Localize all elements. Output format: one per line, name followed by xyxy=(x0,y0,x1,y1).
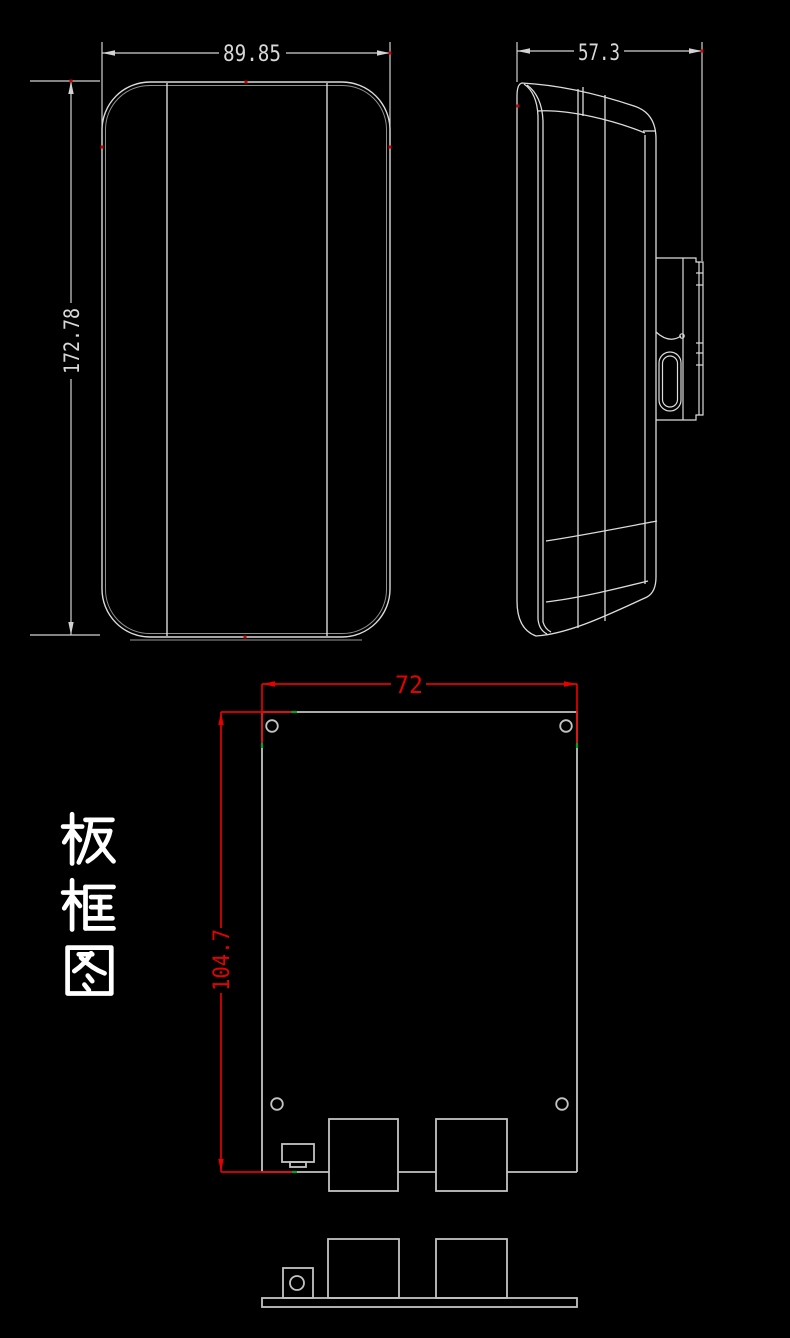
arrowhead xyxy=(377,50,390,55)
arrowhead xyxy=(218,712,223,725)
mounting-hole xyxy=(560,720,572,732)
board-width-value: 72 xyxy=(395,671,423,699)
arrowhead xyxy=(262,681,275,686)
board-profile xyxy=(262,1298,577,1307)
front-outline-outer xyxy=(102,82,390,637)
drawing-sheet: 89.85 172.78 xyxy=(0,0,790,1338)
board-outline-title-glyphs xyxy=(63,814,113,993)
small-component-profile xyxy=(283,1268,313,1298)
connector-footprint xyxy=(329,1119,398,1191)
bracket-slot-inner xyxy=(663,356,678,407)
snap-markers xyxy=(262,712,577,1172)
connector-profile xyxy=(436,1239,507,1298)
side-view xyxy=(517,83,657,636)
arrowhead xyxy=(517,48,530,53)
glyph-kuang xyxy=(63,880,113,929)
connector-profile xyxy=(328,1239,399,1298)
board-outline-view xyxy=(262,712,577,1191)
enclosure-depth-value: 57.3 xyxy=(578,41,620,66)
mounting-bracket xyxy=(656,258,703,420)
side-top-inner-curve xyxy=(537,111,645,133)
small-component-body xyxy=(282,1144,314,1162)
arrowhead xyxy=(68,622,73,635)
arrowhead xyxy=(689,48,702,53)
cad-drawing-canvas: 板框图 89.85 172.78 xyxy=(0,0,790,1338)
arrowhead xyxy=(68,81,73,94)
arrowhead xyxy=(218,1159,223,1172)
small-component-hole xyxy=(290,1276,304,1290)
arrowhead xyxy=(564,681,577,686)
dim-enclosure-height: 172.78 xyxy=(30,81,100,635)
mounting-hole xyxy=(271,1098,283,1110)
enclosure-width-value: 89.85 xyxy=(223,42,281,67)
front-outline-inner-lip xyxy=(106,86,387,634)
small-component-tab xyxy=(290,1162,306,1167)
mounting-hole xyxy=(266,720,278,732)
dim-board-height: 104.7 xyxy=(210,712,292,1172)
board-edge xyxy=(262,712,577,1172)
glyph-ban xyxy=(63,814,113,863)
side-back-shell-line xyxy=(527,85,551,632)
side-bottom-inner-curve xyxy=(546,581,648,602)
enclosure-height-value: 172.78 xyxy=(60,308,84,374)
board-height-value: 104.7 xyxy=(210,929,235,991)
glyph-tu xyxy=(68,948,112,994)
dim-enclosure-depth: 57.3 xyxy=(517,41,702,261)
side-lens-transition-line xyxy=(546,521,657,541)
dim-board-width: 72 xyxy=(262,671,577,747)
mounting-hole xyxy=(556,1098,568,1110)
front-view xyxy=(102,82,390,640)
arrowhead xyxy=(102,50,115,55)
bracket-notch-curve xyxy=(656,332,681,339)
dim-enclosure-width: 89.85 xyxy=(102,42,390,146)
connector-footprint xyxy=(436,1119,507,1191)
board-side-view xyxy=(262,1239,577,1307)
